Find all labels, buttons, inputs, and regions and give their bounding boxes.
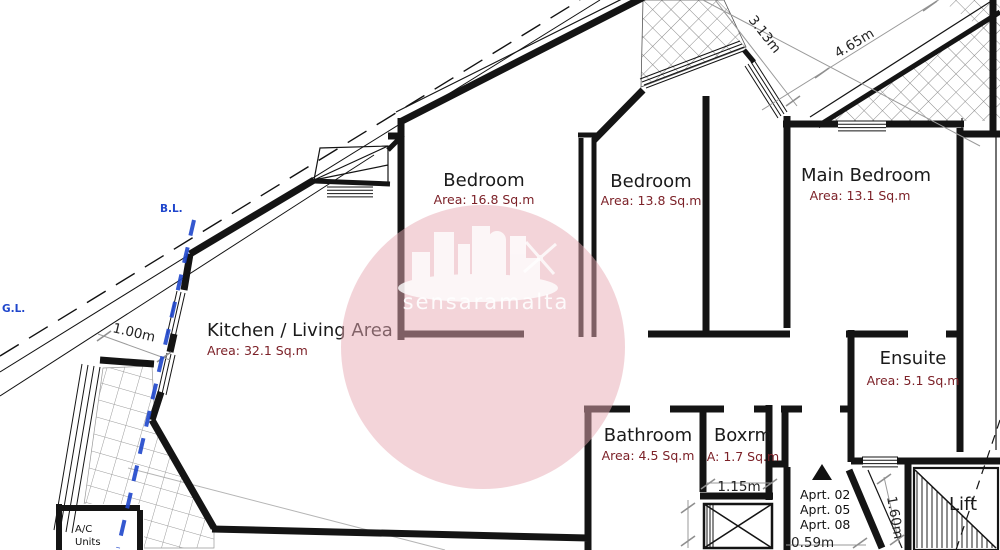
room-main-bedroom-name: Main Bedroom [801, 165, 931, 186]
room-bedroom1-area: Area: 16.8 Sq.m [434, 192, 535, 207]
building-line-label: B.L. [160, 203, 183, 215]
entrance-arrow-icon [812, 464, 832, 480]
room-boxrm-name: Boxrm [714, 425, 772, 446]
floor-plan-svg: B.L. G.L. 3.13m 4.65m 1.00m 1.15m 0.59m … [0, 0, 1000, 550]
watermark-text: sensaramalta [403, 290, 570, 314]
dim-0-59: 0.59m [791, 535, 834, 550]
room-bedroom2-name: Bedroom [610, 171, 691, 192]
apartment-label-2: Aprt. 05 [800, 502, 850, 517]
dim-3-13: 3.13m [745, 13, 784, 57]
ground-line-label: G.L. [2, 303, 25, 315]
room-ensuite-name: Ensuite [880, 348, 947, 369]
room-boxrm-area: A: 1.7 Sq.m [707, 449, 779, 464]
room-lift-name: Lift [949, 494, 977, 515]
floor-plan-page: B.L. G.L. 3.13m 4.65m 1.00m 1.15m 0.59m … [0, 0, 1000, 550]
room-ensuite-area: Area: 5.1 Sq.m [867, 373, 960, 388]
room-bedroom1-name: Bedroom [443, 170, 524, 191]
dim-1-15: 1.15m [717, 479, 760, 495]
hatch-roof-triangle [810, 0, 1000, 126]
room-bathroom-area: Area: 4.5 Sq.m [602, 448, 695, 463]
apartment-label-1: Aprt. 02 [800, 487, 850, 502]
room-main-bedroom-area: Area: 13.1 Sq.m [810, 188, 911, 203]
dim-1-00: 1.00m [111, 320, 157, 345]
ac-units-line1: A/C [75, 524, 92, 535]
vent-shaft-box [704, 504, 772, 548]
apartment-entrance: Aprt. 02 Aprt. 05 Aprt. 08 [800, 464, 850, 532]
watermark: sensaramalta [341, 205, 625, 489]
hatch-airshaft-top [641, 0, 746, 87]
room-bedroom2-area: Area: 13.8 Sq.m [601, 193, 702, 208]
dim-4-65: 4.65m [832, 25, 877, 61]
apartment-label-3: Aprt. 08 [800, 517, 850, 532]
dim-1-60: 1.60m [883, 495, 906, 540]
room-bathroom-name: Bathroom [604, 425, 692, 446]
ac-units-line2: Units [75, 537, 101, 548]
room-kitchen-area: Area: 32.1 Sq.m [207, 343, 308, 358]
